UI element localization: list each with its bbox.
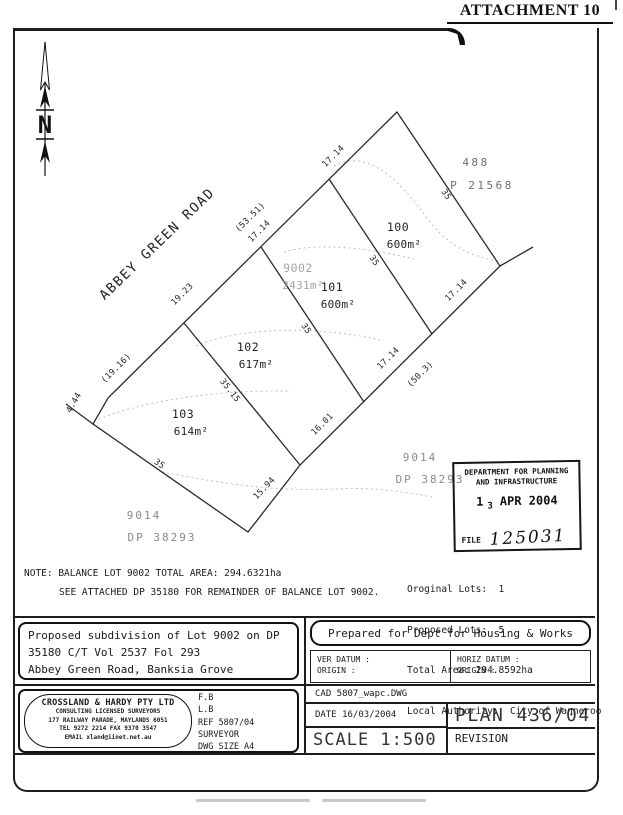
description-line1: Proposed subdivision of Lot 9002 on DP xyxy=(28,627,289,644)
firm-line5: EMAIL xland@iinet.net.au xyxy=(25,734,191,743)
stamp-date-month-year: APR 2004 xyxy=(500,493,558,508)
description-line3: Abbey Green Road, Banksia Grove xyxy=(28,661,289,678)
stamp-date-day: 1 xyxy=(476,495,483,509)
note-line1: NOTE: BALANCE LOT 9002 TOTAL AREA: 294.6… xyxy=(24,568,281,579)
stamp-date-day2: 3 xyxy=(487,501,493,511)
surveyor-firm-section: CROSSLAND & HARDY PTY LTD CONSULTING LIC… xyxy=(18,689,299,753)
approval-stamp: DEPARTMENT FOR PLANNING AND INFRASTRUCTU… xyxy=(452,460,582,552)
stamp-file-number: 125031 xyxy=(489,526,567,550)
reference-column: F.B L.B REF 5807/04 SURVEYOR DWG SIZE A4 xyxy=(198,692,254,753)
ver-datum-label: VER DATUM : xyxy=(317,654,444,665)
horiz-origin-label: ORIGIN : xyxy=(457,665,584,676)
scan-streak xyxy=(322,799,426,802)
plan-scale: SCALE 1:500 xyxy=(305,728,448,753)
horiz-datum-label: HORIZ DATUM : xyxy=(457,654,584,665)
ver-origin-label: ORIGIN : xyxy=(317,665,444,676)
titleblock-bottom-rule xyxy=(13,753,595,755)
level-book-label: L.B xyxy=(198,704,254,716)
firm-name: CROSSLAND & HARDY PTY LTD xyxy=(25,698,191,708)
stamp-file-label: FILE xyxy=(462,536,481,545)
scan-edge-mark xyxy=(615,0,617,10)
description-line2: 35180 C/T Vol 2537 Fol 293 xyxy=(28,644,289,661)
field-book-label: F.B xyxy=(198,692,254,704)
cad-filename: CAD 5807_wapc.DWG xyxy=(305,686,595,704)
plan-number: PLAN 436/04 xyxy=(448,704,595,729)
surveyor-label: SURVEYOR xyxy=(198,729,254,741)
dwg-size: DWG SIZE A4 xyxy=(198,741,254,753)
firm-line2: CONSULTING LICENSED SURVEYORS xyxy=(25,708,191,717)
job-reference: REF 5807/04 xyxy=(198,717,254,729)
summary-original-lots: Oroginal Lots: 1 xyxy=(407,583,601,597)
plan-date: DATE 16/03/2004 xyxy=(305,704,448,728)
surveyor-firm-box: CROSSLAND & HARDY PTY LTD CONSULTING LIC… xyxy=(24,694,192,748)
attachment-label: ATTACHMENT 10 xyxy=(447,2,613,24)
firm-line4: TEL 9272 2214 FAX 9370 3547 xyxy=(25,725,191,734)
datum-row: VER DATUM : ORIGIN : HORIZ DATUM : ORIGI… xyxy=(310,650,591,683)
prepared-for: Prepared for Dept for Housing & Works xyxy=(310,620,591,646)
plan-description: Proposed subdivision of Lot 9002 on DP 3… xyxy=(18,622,299,680)
horiz-datum-cell: HORIZ DATUM : ORIGIN : xyxy=(450,651,590,682)
stamp-date: 13APR 2004 xyxy=(455,493,579,509)
scan-streak xyxy=(196,799,310,802)
firm-line3: 177 RAILWAY PARADE, MAYLANDS 6051 xyxy=(25,717,191,726)
note-line2: SEE ATTACHED DP 35180 FOR REMAINDER OF B… xyxy=(59,587,379,598)
ver-datum-cell: VER DATUM : ORIGIN : xyxy=(311,651,450,682)
plan-revision: REVISION xyxy=(448,729,595,753)
survey-plan-sheet: ATTACHMENT 10 N xyxy=(0,0,623,815)
